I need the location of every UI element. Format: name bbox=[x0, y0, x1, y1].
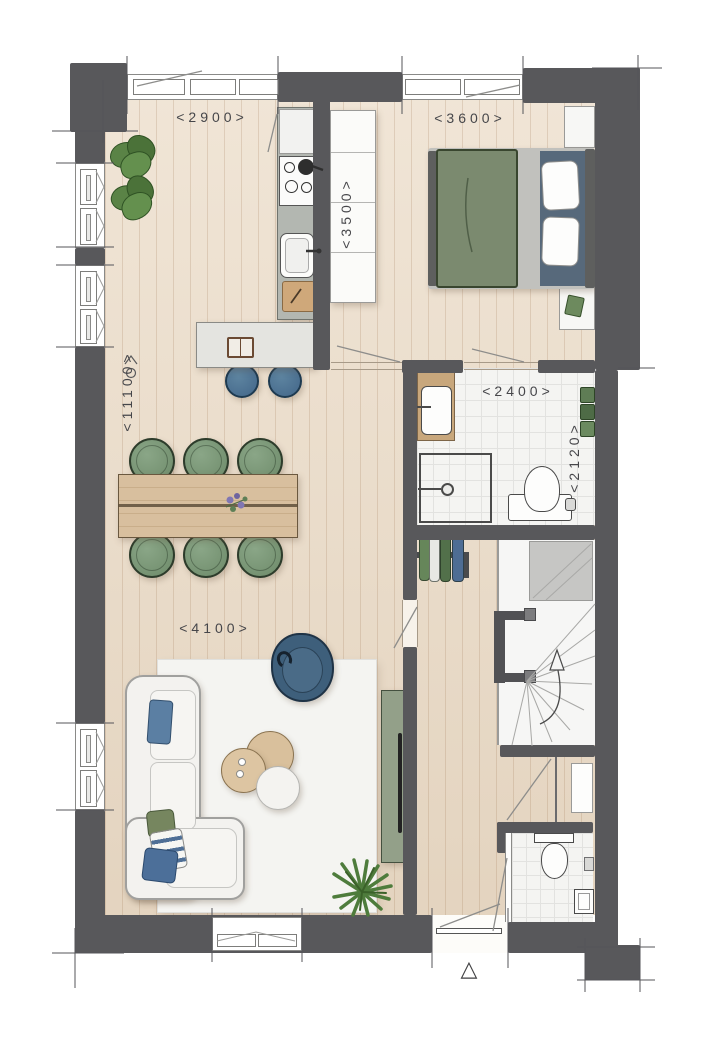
wall bbox=[278, 72, 402, 102]
dimension-label-bathroom-width: <2400> bbox=[468, 384, 568, 398]
kitchen-sink-basin bbox=[285, 238, 309, 273]
coat-hanger bbox=[452, 536, 464, 582]
stair-railing bbox=[494, 611, 505, 683]
floor-plan: <2900> <3600> <3500> <11100> <2400> <212… bbox=[0, 0, 710, 1050]
dining-chair bbox=[183, 532, 229, 578]
closet-partition bbox=[555, 757, 557, 822]
wc-toilet-bowl bbox=[541, 843, 568, 879]
wc-washbasin-inner bbox=[578, 893, 590, 910]
book-spine bbox=[240, 338, 241, 357]
pan-on-stove bbox=[298, 159, 314, 175]
wall bbox=[595, 68, 640, 370]
bar-stool bbox=[225, 364, 259, 398]
towels bbox=[580, 387, 595, 438]
dimension-label-kitchen-width: <2900> bbox=[162, 110, 262, 124]
window-pane bbox=[133, 79, 185, 95]
window-pane bbox=[80, 309, 97, 344]
towel bbox=[580, 387, 595, 403]
dining-chair bbox=[129, 532, 175, 578]
wall bbox=[403, 525, 595, 540]
coat-hanger bbox=[429, 535, 440, 582]
entrance-marker-icon: △ bbox=[455, 958, 483, 980]
window-pane bbox=[217, 934, 256, 947]
pillow-darkblue bbox=[141, 847, 179, 884]
towel bbox=[580, 421, 595, 437]
wall bbox=[585, 945, 640, 980]
wall bbox=[75, 248, 105, 265]
bathroom-door-threshold bbox=[464, 362, 538, 370]
window-pane bbox=[80, 770, 97, 807]
living-room-door-opening bbox=[402, 600, 418, 647]
wc-door-leaf bbox=[505, 833, 512, 922]
window-pane bbox=[239, 79, 279, 95]
dimension-label-living-width: <4100> bbox=[165, 621, 265, 635]
stove-burner bbox=[301, 182, 312, 193]
towel bbox=[580, 404, 595, 420]
coat-hanger bbox=[440, 536, 451, 582]
dining-table-gap bbox=[118, 504, 298, 507]
window-pane bbox=[80, 169, 97, 205]
plant bbox=[108, 136, 158, 180]
bar-stool bbox=[268, 364, 302, 398]
stair-newel bbox=[524, 670, 536, 683]
wardrobe-divider bbox=[331, 152, 375, 153]
dimension-label-kitchen-depth: <3500> bbox=[339, 163, 353, 263]
window-pane bbox=[80, 729, 97, 767]
shower bbox=[419, 453, 492, 523]
shower-drain bbox=[441, 483, 454, 496]
kitchen-tall-cabinet bbox=[279, 109, 315, 154]
washbasin bbox=[421, 386, 452, 435]
front-door-leaf bbox=[436, 928, 502, 934]
wardrobe-divider bbox=[331, 252, 375, 253]
window-pane bbox=[80, 208, 97, 245]
dining-chair bbox=[237, 532, 283, 578]
wc-cistern bbox=[534, 833, 574, 843]
window-pane bbox=[80, 271, 97, 306]
stair-newel bbox=[524, 608, 536, 621]
wall bbox=[403, 647, 417, 915]
dimension-label-bedroom-width: <3600> bbox=[420, 111, 520, 125]
bed-headboard bbox=[585, 149, 595, 288]
stove-burner bbox=[285, 180, 298, 193]
stair-landing bbox=[529, 541, 593, 601]
front-door-opening bbox=[432, 915, 508, 953]
wc-flush-panel bbox=[584, 857, 594, 871]
coffee-table-white bbox=[256, 766, 300, 810]
tv-screen bbox=[398, 733, 402, 833]
wall bbox=[403, 360, 417, 600]
bed-pillow bbox=[541, 216, 580, 266]
kitchen-island bbox=[196, 322, 316, 368]
bed-pillow bbox=[541, 160, 581, 211]
wall bbox=[313, 100, 330, 370]
bedroom-door-threshold bbox=[331, 362, 402, 370]
utility-cabinet bbox=[571, 763, 593, 813]
dimension-label-total-depth: <11100> bbox=[120, 333, 134, 449]
window-pane bbox=[464, 79, 520, 95]
cutting-board bbox=[282, 281, 315, 312]
window-pane bbox=[405, 79, 461, 95]
wall bbox=[595, 370, 618, 955]
wall bbox=[500, 745, 595, 757]
dimension-label-bathroom-depth: <2120> bbox=[567, 407, 581, 507]
pillow-blue bbox=[146, 699, 173, 745]
bed-duvet-green bbox=[436, 149, 518, 288]
plant bbox=[111, 177, 157, 221]
wall bbox=[538, 360, 595, 373]
window-pane bbox=[258, 934, 297, 947]
cup bbox=[236, 770, 244, 778]
nightstand bbox=[564, 106, 595, 148]
cup bbox=[238, 758, 246, 766]
stove-burner bbox=[284, 162, 295, 173]
window-pane bbox=[190, 79, 236, 95]
wall bbox=[75, 100, 105, 163]
toilet-bowl bbox=[524, 466, 560, 512]
wall bbox=[75, 347, 105, 723]
